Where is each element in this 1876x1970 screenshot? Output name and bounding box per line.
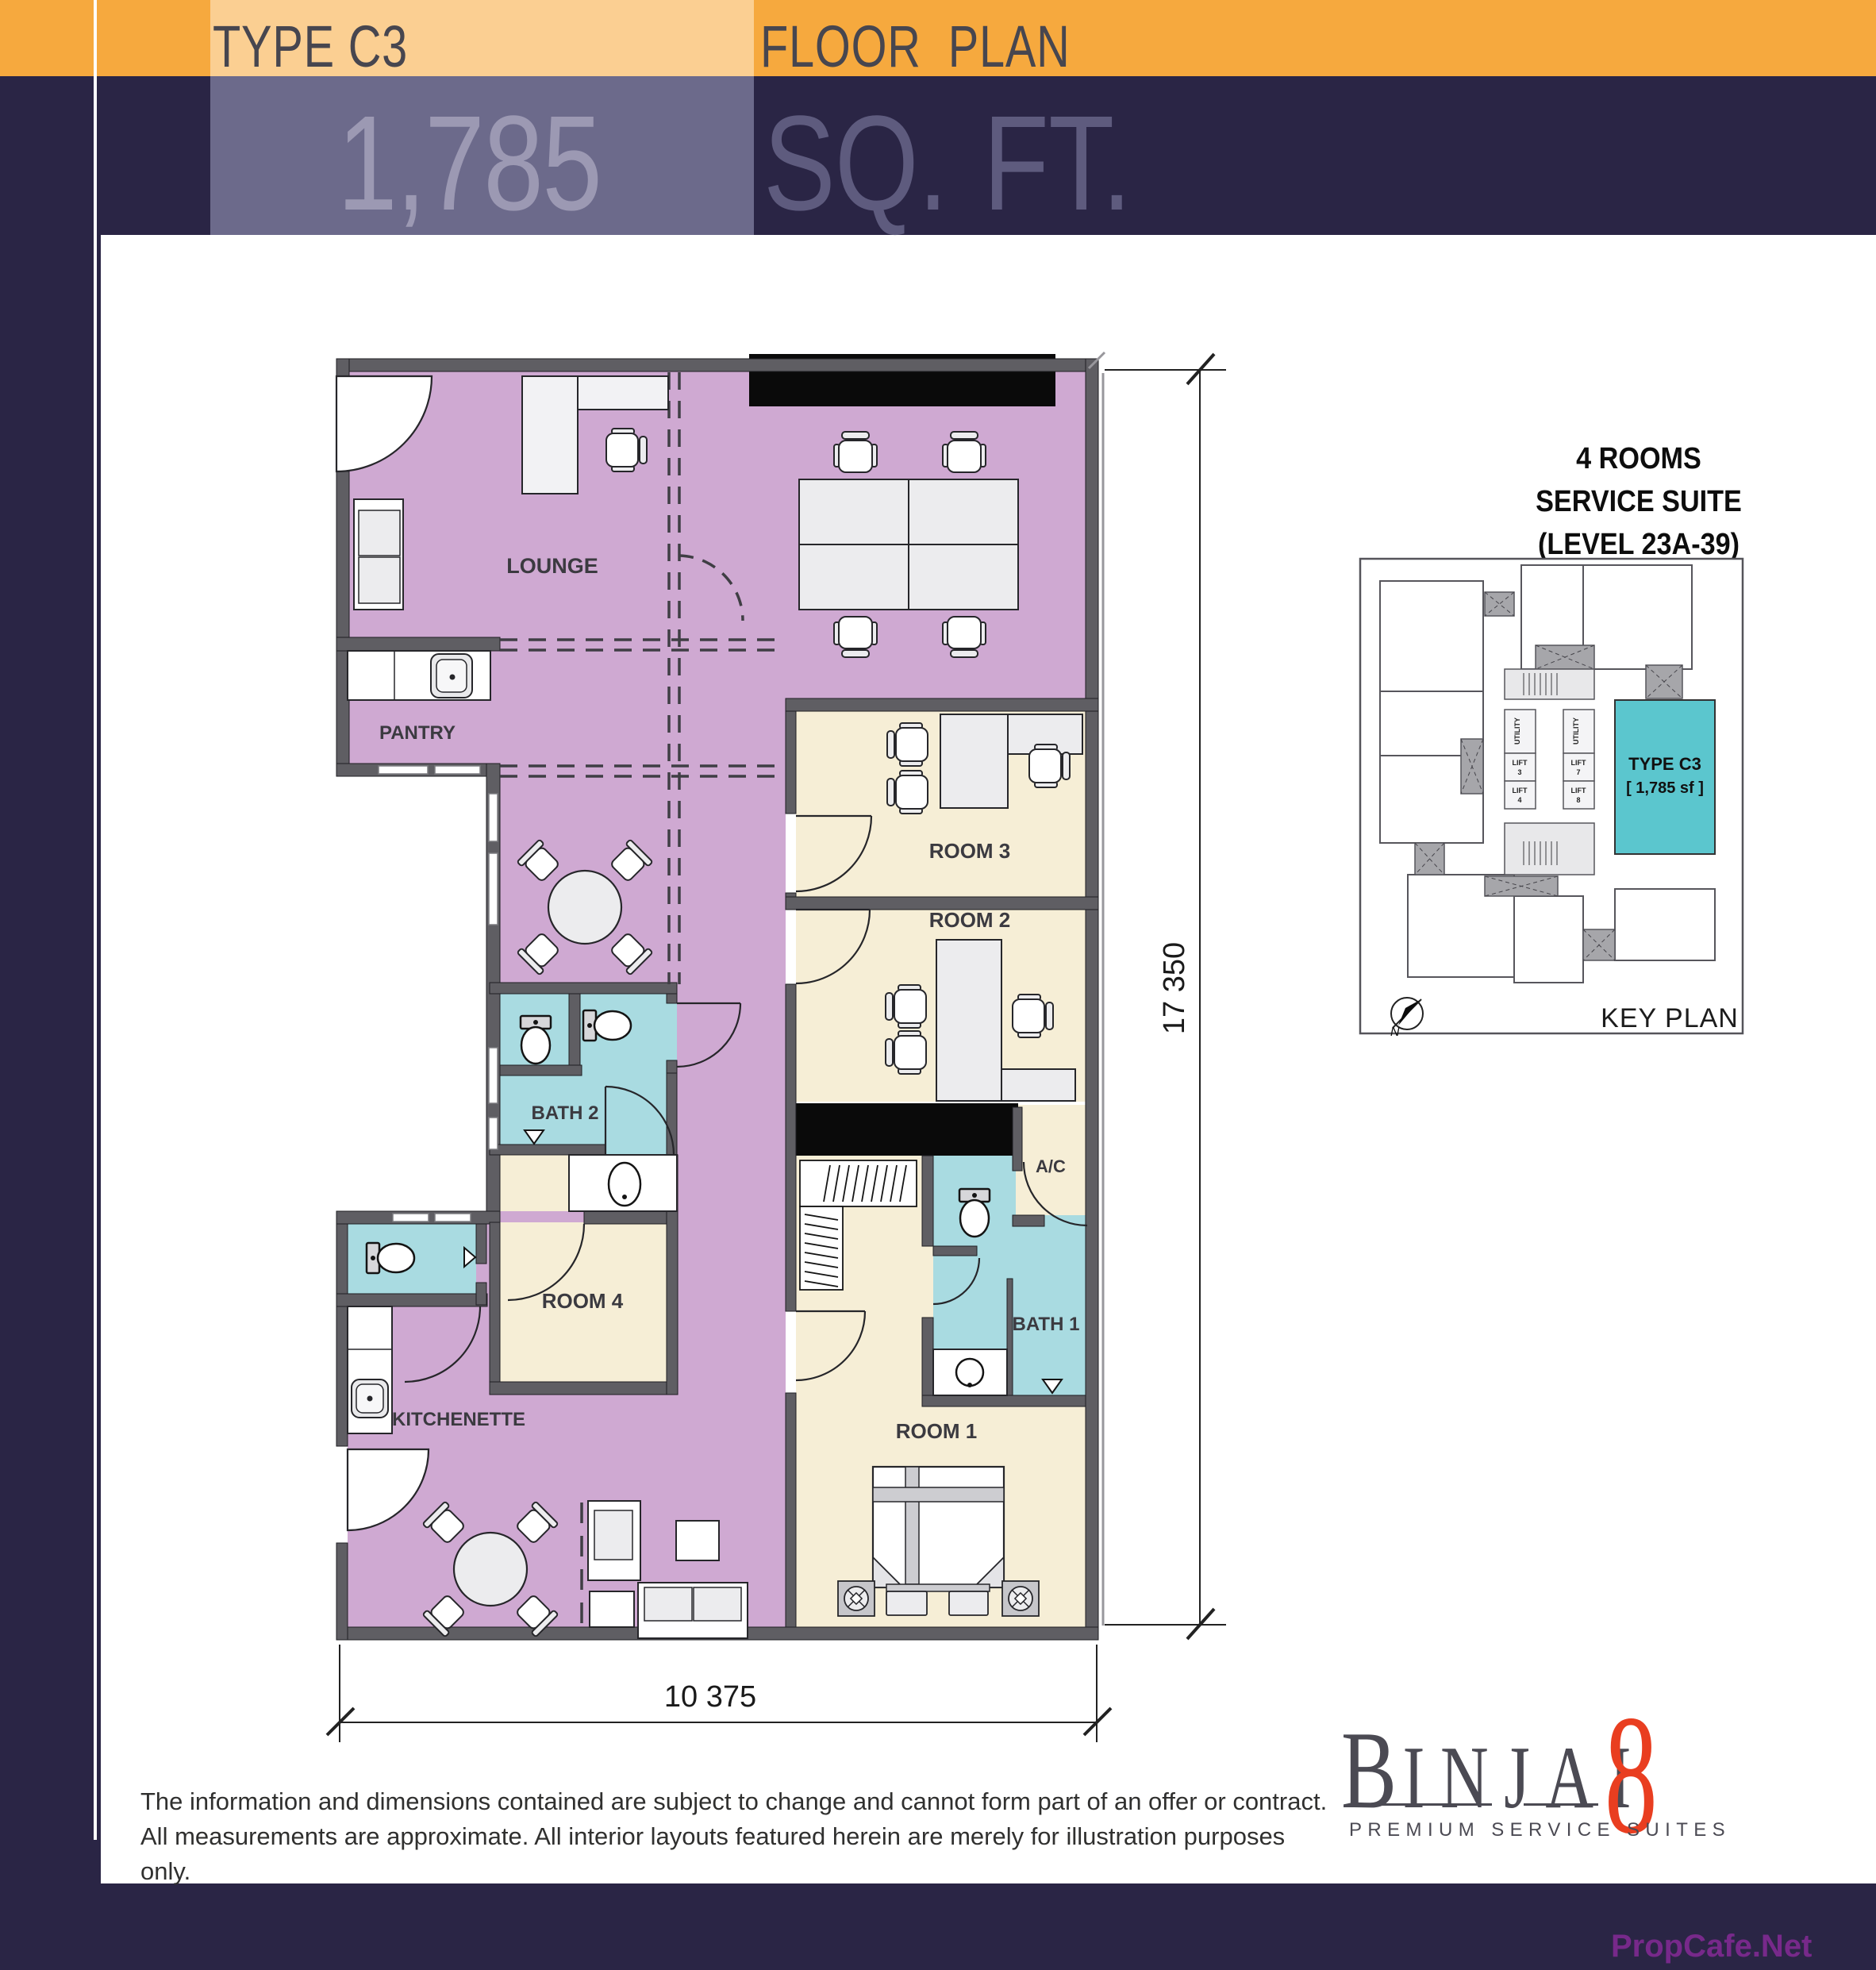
bath2-label: BATH 2: [532, 1102, 599, 1124]
keyplan-title: 4 ROOMS SERVICE SUITE (LEVEL 23A-39): [1478, 438, 1800, 567]
kitchenette-label: KITCHENETTE: [392, 1409, 525, 1430]
nightstand-icon: [1002, 1581, 1039, 1616]
lift-label: LIFT: [1513, 787, 1528, 795]
bath1-label: BATH 1: [1013, 1314, 1080, 1335]
coffee-table-icon: [676, 1521, 719, 1560]
dimension-width-label: 10 375: [664, 1680, 756, 1714]
logo-letter-b: B: [1341, 1706, 1397, 1834]
lift-label: LIFT: [1571, 759, 1586, 767]
toilet-icon: [959, 1189, 990, 1237]
toilet-icon: [583, 1010, 631, 1041]
lift-number: 3: [1517, 768, 1521, 776]
ac-label: A/C: [1036, 1156, 1066, 1176]
area-unit: SQ. FT.: [763, 86, 1131, 241]
logo-tagline: PREMIUM SERVICE SUITES: [1349, 1819, 1731, 1841]
toilet-icon: [521, 1016, 551, 1064]
binjai-logo: BINJAI: [1341, 1706, 1627, 1806]
dining-table-icon: [548, 871, 621, 944]
keyplan-title-line2: SERVICE SUITE: [1478, 481, 1800, 524]
desk-icon: [940, 714, 1008, 808]
compass-north-label: N: [1390, 1025, 1400, 1039]
service-band-middle: [786, 1103, 1018, 1156]
area-value: 1,785: [337, 86, 601, 241]
keyplan-caption: KEY PLAN: [1601, 1003, 1739, 1033]
room1-label: ROOM 1: [896, 1419, 978, 1443]
utility-label: UTILITY: [1513, 718, 1521, 745]
room2-label: ROOM 2: [929, 908, 1011, 932]
left-navy-strip: [0, 0, 101, 1970]
unit-type-title: TYPE C3: [213, 13, 408, 80]
lift-number: 4: [1517, 796, 1521, 804]
dining-table-icon: [454, 1533, 527, 1606]
watermark: PropCafe.Net: [1611, 1929, 1812, 1964]
lift-number: 7: [1576, 768, 1580, 776]
disclaimer-line1: The information and dimensions contained…: [140, 1784, 1331, 1819]
utility-label: UTILITY: [1572, 718, 1580, 745]
pillow-icon: [949, 1591, 988, 1615]
left-white-line: [94, 0, 97, 1840]
bottom-navy-band: [0, 1883, 1876, 1970]
dimension-height-label: 17 350: [1158, 942, 1191, 1034]
lounge-label: LOUNGE: [506, 554, 598, 578]
logo-underline: [1349, 1803, 1492, 1806]
pillow-icon: [886, 1591, 927, 1615]
basin-icon: [956, 1359, 983, 1386]
lift-number: 8: [1576, 796, 1580, 804]
floor-plan: LOUNGE PANTRY ROOM 3 ROOM 2 BATH 2 A/C B…: [325, 349, 1238, 1746]
toilet-icon: [367, 1243, 414, 1273]
key-plan: UTILITY UTILITY LIFT 3 LIFT 4 LIFT 7 LIF…: [1349, 552, 1754, 1044]
brochure-page: TYPE C3 FLOOR PLAN 1,785 SQ. FT.: [0, 0, 1876, 1970]
lift-label: LIFT: [1571, 787, 1586, 795]
room4-label: ROOM 4: [542, 1289, 624, 1313]
disclaimer-line2: All measurements are approximate. All in…: [140, 1819, 1331, 1889]
disclaimer: The information and dimensions contained…: [140, 1784, 1331, 1889]
side-table-icon: [590, 1591, 634, 1627]
keyplan-unit-label: TYPE C3: [1628, 754, 1701, 774]
highlighted-unit-c3: [1615, 700, 1715, 854]
room3-label: ROOM 3: [929, 839, 1011, 863]
floor-plan-title: FLOOR PLAN: [760, 13, 1071, 80]
window-inserts: [379, 766, 498, 1222]
pantry-fixtures: [348, 651, 490, 700]
lift-label: LIFT: [1513, 759, 1528, 767]
keyplan-unit-area: [ 1,785 sf ]: [1626, 779, 1704, 797]
logo-underline: [1524, 1803, 1598, 1806]
desk-icon: [936, 940, 1001, 1101]
pantry-label: PANTRY: [379, 722, 456, 744]
nightstand-icon: [838, 1581, 875, 1616]
keyplan-title-line1: 4 ROOMS: [1478, 438, 1800, 481]
